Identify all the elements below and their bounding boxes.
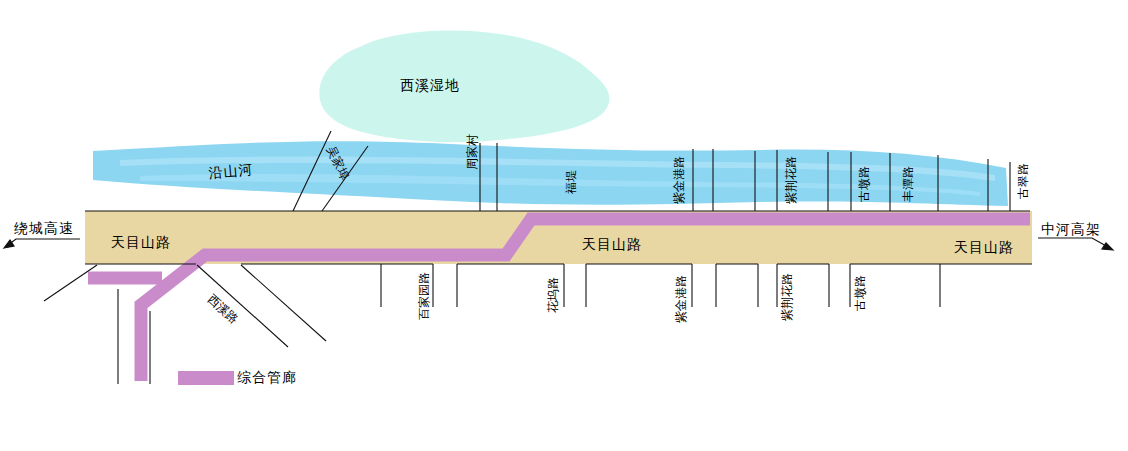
cross-street-label-north: 紫金港路 [673, 156, 685, 204]
cross-street-label-north: 紫荆花路 [785, 156, 797, 204]
cross-street-label-north: 周家村 [466, 134, 478, 170]
cross-street-label-north: 丰潭路 [902, 166, 914, 202]
cross-street-label-north: 古墩路 [858, 166, 870, 202]
cross-street-label-north: 福堤 [565, 170, 577, 194]
legend-label: 综合管廊 [237, 371, 297, 385]
ring-expressway-label: 绕城高速 [14, 222, 74, 236]
cross-street-label-south: 花坞路 [547, 277, 559, 313]
main-road-label-east: 天目山路 [954, 241, 1014, 255]
wetland-label: 西溪湿地 [400, 79, 460, 93]
map-canvas [0, 0, 1128, 451]
cross-street-label-south: 古墩路 [854, 275, 866, 311]
cross-street-label-south: 紫荆花路 [781, 273, 793, 321]
schematic-map: 西溪湿地 沿山河 绕城高速 中河高架 天目山路 天目山路 天目山路 吴家埠 周家… [0, 0, 1128, 451]
main-road-label-middle: 天目山路 [582, 238, 642, 252]
wetland-shape [319, 30, 609, 142]
main-road-label-west: 天目山路 [111, 236, 171, 250]
east-arrow [1038, 238, 1113, 250]
west-arrow [4, 239, 80, 248]
cross-street-label-south: 紫金港路 [675, 275, 687, 323]
viaduct-label: 中河高架 [1041, 223, 1101, 237]
legend-swatch [178, 371, 234, 385]
cross-street-label-south: 百家园路 [418, 272, 430, 320]
cross-street-label-north: 古翠路 [1017, 163, 1029, 199]
